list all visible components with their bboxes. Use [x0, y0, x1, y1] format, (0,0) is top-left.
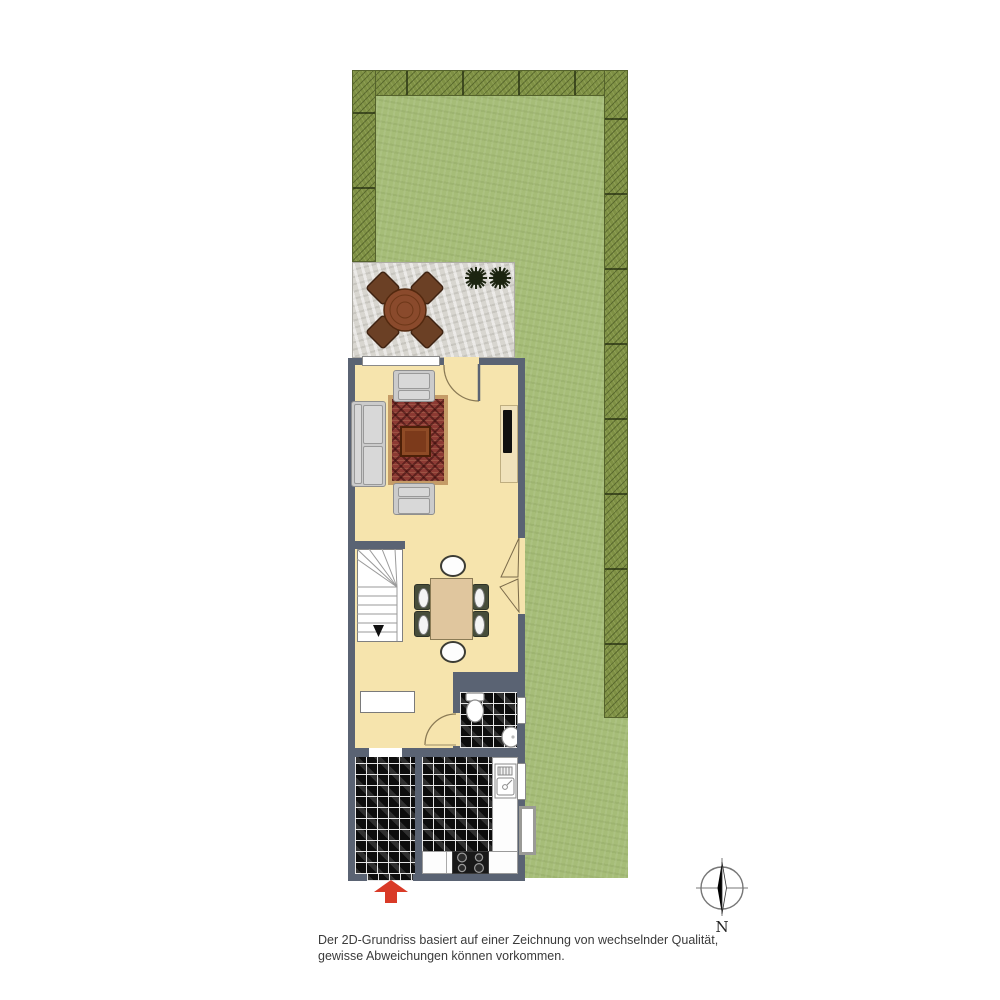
compass-needle [718, 862, 723, 914]
dining-chair [472, 611, 489, 637]
kitchen-window [517, 763, 526, 800]
entrance-arrow-icon [372, 879, 410, 904]
floor-plan: N Der 2D-Grundriss basiert auf einer Zei… [0, 0, 1000, 1000]
stairs-treads [357, 549, 403, 642]
kitchen-sink [494, 763, 518, 799]
potted-plant-icon [464, 266, 488, 290]
counter-divider [446, 852, 447, 873]
compass [694, 852, 750, 918]
dining-chair [440, 641, 466, 663]
armchair [393, 483, 435, 515]
sideboard-cabinet [360, 691, 415, 713]
stairs-direction-arrow [373, 625, 384, 637]
dining-table [430, 578, 473, 640]
terrace-window [362, 356, 440, 366]
bathroom-sink [502, 727, 517, 747]
hedge-top [352, 70, 628, 96]
toilet [466, 693, 484, 722]
stair-wall [355, 541, 405, 549]
bathroom-window [517, 697, 526, 724]
bay-window [519, 806, 536, 855]
bathroom-fixtures [460, 692, 517, 748]
potted-plant-icon [488, 266, 512, 290]
patio-table-set [363, 268, 447, 352]
hall-door-opening [369, 748, 402, 757]
disclaimer-line-2: gewisse Abweichungen können vorkommen. [318, 948, 738, 964]
hall-kitchen-wall [415, 757, 422, 874]
disclaimer-line-1: Der 2D-Grundriss basiert auf einer Zeich… [318, 932, 738, 948]
dining-chair [440, 555, 466, 577]
bathroom-door-arc [424, 710, 458, 748]
french-door [496, 535, 522, 615]
stove-burners [452, 851, 489, 874]
dining-chair [472, 584, 489, 610]
disclaimer-text: Der 2D-Grundriss basiert auf einer Zeich… [318, 932, 738, 964]
hallway-floor [355, 757, 415, 874]
hedge-left [352, 70, 376, 262]
coffee-table [400, 426, 431, 457]
sofa [351, 401, 386, 487]
dining-chair [414, 584, 431, 610]
armchair [393, 370, 435, 402]
tv [503, 410, 512, 453]
dining-chair [414, 611, 431, 637]
hedge-right [604, 70, 628, 718]
